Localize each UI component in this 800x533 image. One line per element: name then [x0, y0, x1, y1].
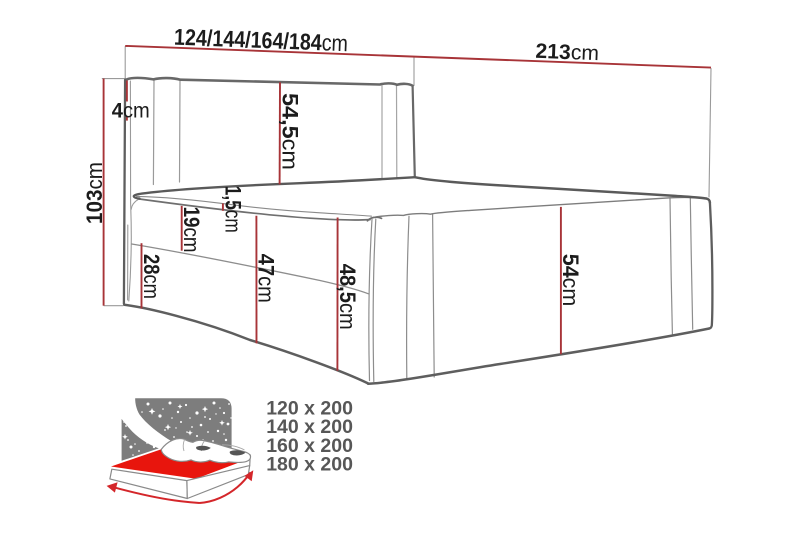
svg-text:54,5cm: 54,5cm	[277, 93, 302, 170]
svg-text:48,5cm: 48,5cm	[335, 264, 360, 330]
svg-text:28cm: 28cm	[139, 254, 164, 299]
svg-text:19cm: 19cm	[179, 207, 204, 253]
svg-text:1,5cm: 1,5cm	[220, 186, 245, 233]
svg-text:54cm: 54cm	[558, 254, 583, 306]
svg-text:124/144/164/184cm: 124/144/164/184cm	[174, 24, 349, 57]
svg-text:103cm: 103cm	[82, 162, 107, 224]
svg-text:4cm: 4cm	[112, 99, 150, 122]
svg-text:180 x 200: 180 x 200	[266, 453, 353, 475]
svg-text:47cm: 47cm	[254, 254, 279, 303]
svg-text:213cm: 213cm	[535, 40, 599, 65]
